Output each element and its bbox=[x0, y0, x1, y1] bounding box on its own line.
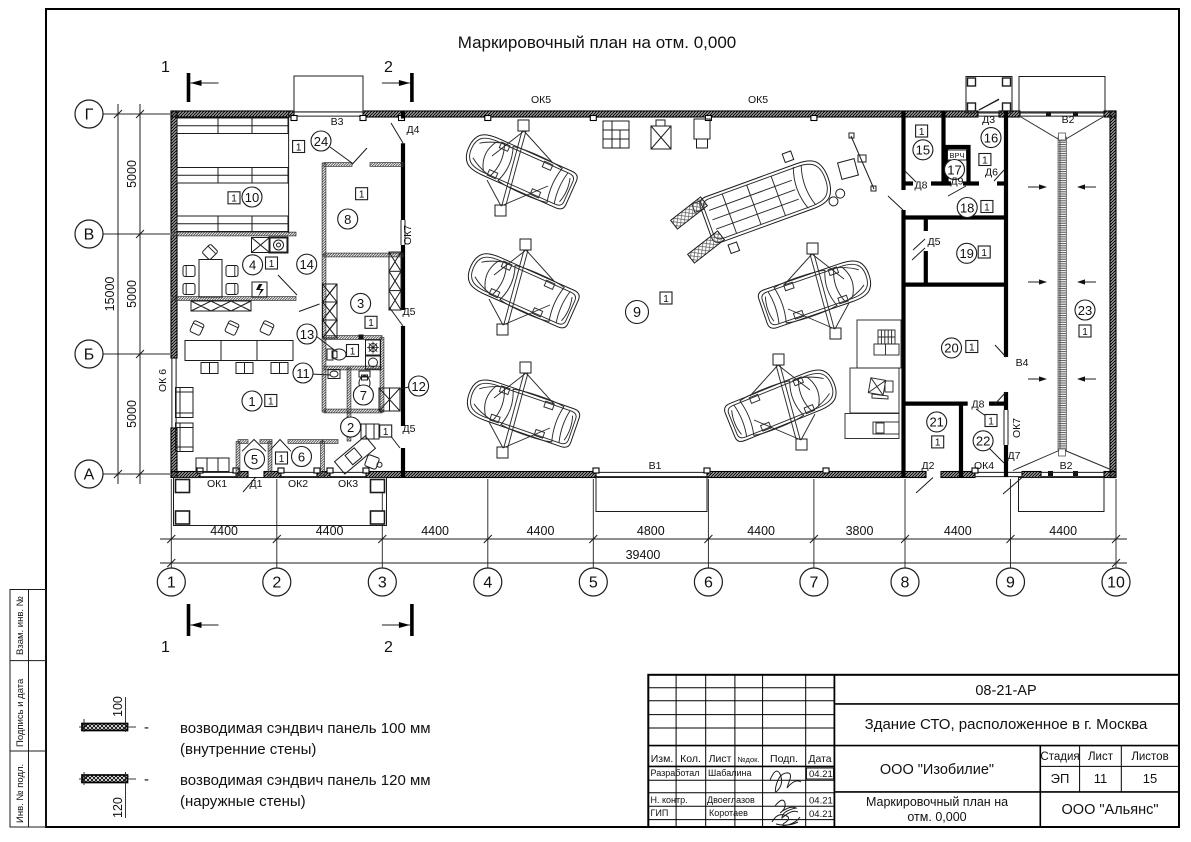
svg-text:Д9: Д9 bbox=[951, 176, 964, 188]
svg-text:Д5: Д5 bbox=[403, 306, 416, 318]
svg-text:Н. контр.: Н. контр. bbox=[651, 795, 688, 805]
svg-text:1: 1 bbox=[161, 639, 170, 656]
svg-text:-: - bbox=[144, 771, 149, 788]
svg-text:04.21: 04.21 bbox=[809, 796, 833, 807]
svg-text:9: 9 bbox=[1006, 575, 1015, 592]
svg-text:-: - bbox=[144, 719, 149, 736]
svg-text:8: 8 bbox=[344, 212, 351, 227]
svg-text:04.21: 04.21 bbox=[809, 809, 833, 820]
svg-text:5: 5 bbox=[589, 575, 598, 592]
svg-text:ВРЧ: ВРЧ bbox=[949, 151, 964, 160]
svg-text:ОК4: ОК4 bbox=[974, 460, 994, 472]
svg-text:1: 1 bbox=[350, 346, 356, 357]
svg-text:4400: 4400 bbox=[747, 524, 775, 538]
svg-text:Маркировочный план на: Маркировочный план на bbox=[866, 795, 1008, 809]
svg-text:В4: В4 bbox=[1016, 357, 1029, 369]
svg-text:Подп.: Подп. bbox=[770, 753, 798, 765]
svg-text:4400: 4400 bbox=[1049, 524, 1077, 538]
svg-text:4: 4 bbox=[483, 575, 492, 592]
svg-text:1: 1 bbox=[984, 202, 990, 213]
svg-text:04.21: 04.21 bbox=[809, 769, 833, 780]
svg-text:Г: Г bbox=[85, 107, 94, 124]
svg-text:Коротаев: Коротаев bbox=[709, 808, 748, 818]
svg-text:1: 1 bbox=[663, 294, 669, 305]
svg-text:3: 3 bbox=[378, 575, 387, 592]
svg-text:отм. 0,000: отм. 0,000 bbox=[907, 810, 966, 824]
svg-text:1: 1 bbox=[969, 342, 975, 353]
svg-text:2: 2 bbox=[347, 420, 354, 435]
svg-text:возводимая сэндвич панель 100: возводимая сэндвич панель 100 мм bbox=[180, 720, 431, 737]
svg-text:1: 1 bbox=[1082, 327, 1088, 338]
svg-text:1: 1 bbox=[167, 575, 176, 592]
svg-text:Дата: Дата bbox=[808, 753, 831, 765]
svg-text:08-21-АР: 08-21-АР bbox=[975, 683, 1036, 699]
svg-text:Д2: Д2 bbox=[922, 460, 935, 472]
svg-text:10: 10 bbox=[1107, 575, 1125, 592]
svg-text:ОК5: ОК5 bbox=[748, 94, 768, 106]
svg-text:1: 1 bbox=[368, 318, 374, 329]
svg-text:1: 1 bbox=[248, 394, 255, 409]
svg-text:4400: 4400 bbox=[210, 524, 238, 538]
svg-text:10: 10 bbox=[245, 190, 259, 205]
svg-text:14: 14 bbox=[299, 257, 313, 272]
svg-text:В2: В2 bbox=[1062, 114, 1075, 126]
svg-text:4400: 4400 bbox=[944, 524, 972, 538]
svg-text:ОК1: ОК1 bbox=[207, 478, 227, 490]
svg-text:4800: 4800 bbox=[637, 524, 665, 538]
svg-text:В1: В1 bbox=[649, 460, 662, 472]
svg-text:20: 20 bbox=[944, 341, 958, 356]
svg-text:ОК2: ОК2 bbox=[288, 478, 308, 490]
svg-text:1: 1 bbox=[296, 142, 302, 153]
svg-text:Д5: Д5 bbox=[403, 423, 416, 435]
svg-text:5: 5 bbox=[251, 452, 258, 467]
svg-text:В: В bbox=[84, 227, 95, 244]
svg-text:2: 2 bbox=[384, 639, 393, 656]
svg-text:Кол.: Кол. bbox=[680, 753, 701, 765]
svg-text:2: 2 bbox=[272, 575, 281, 592]
svg-text:В2: В2 bbox=[1060, 460, 1073, 472]
svg-text:3800: 3800 bbox=[846, 524, 874, 538]
svg-text:Б: Б bbox=[84, 347, 95, 364]
svg-text:Подпись и дата: Подпись и дата bbox=[15, 678, 26, 747]
svg-text:Взам. инв. №: Взам. инв. № bbox=[15, 596, 26, 655]
svg-text:7: 7 bbox=[809, 575, 818, 592]
svg-text:ОК5: ОК5 bbox=[531, 94, 551, 106]
svg-text:1: 1 bbox=[231, 194, 237, 205]
svg-text:Д3: Д3 bbox=[982, 114, 995, 126]
svg-text:1: 1 bbox=[919, 127, 925, 138]
svg-text:Д4: Д4 bbox=[407, 124, 420, 136]
svg-text:24: 24 bbox=[314, 134, 328, 149]
svg-text:23: 23 bbox=[1078, 303, 1092, 318]
svg-text:6: 6 bbox=[298, 449, 305, 464]
svg-text:1: 1 bbox=[383, 427, 389, 438]
svg-text:ООО "Альянс": ООО "Альянс" bbox=[1062, 802, 1159, 818]
svg-text:11: 11 bbox=[296, 366, 310, 381]
svg-text:120: 120 bbox=[111, 797, 125, 818]
svg-text:100: 100 bbox=[111, 696, 125, 717]
svg-text:16: 16 bbox=[984, 130, 998, 145]
svg-text:18: 18 bbox=[960, 200, 974, 215]
svg-text:6: 6 bbox=[704, 575, 713, 592]
svg-text:1: 1 bbox=[161, 59, 170, 76]
svg-text:4400: 4400 bbox=[316, 524, 344, 538]
svg-text:22: 22 bbox=[976, 434, 990, 449]
svg-text:Д6: Д6 bbox=[985, 167, 998, 179]
svg-text:15: 15 bbox=[916, 143, 930, 158]
svg-text:Листов: Листов bbox=[1131, 751, 1168, 763]
svg-text:4400: 4400 bbox=[527, 524, 555, 538]
svg-text:1: 1 bbox=[279, 454, 285, 465]
svg-text:ГИП: ГИП bbox=[651, 808, 669, 818]
svg-text:№док.: №док. bbox=[738, 755, 760, 764]
svg-text:5000: 5000 bbox=[125, 280, 139, 308]
svg-text:4: 4 bbox=[249, 258, 256, 273]
svg-text:8: 8 bbox=[901, 575, 910, 592]
svg-text:ООО "Изобилие": ООО "Изобилие" bbox=[880, 762, 994, 778]
svg-text:15000: 15000 bbox=[103, 277, 117, 312]
svg-text:(наружные стены): (наружные стены) bbox=[180, 793, 306, 810]
svg-text:Лист: Лист bbox=[709, 753, 732, 765]
svg-text:2: 2 bbox=[384, 59, 393, 76]
svg-text:1: 1 bbox=[981, 248, 987, 259]
svg-text:13: 13 bbox=[300, 327, 314, 342]
svg-text:15: 15 bbox=[1143, 771, 1157, 786]
svg-text:1: 1 bbox=[988, 416, 994, 427]
svg-text:1: 1 bbox=[269, 259, 275, 270]
svg-text:Шабалина: Шабалина bbox=[708, 768, 751, 778]
svg-text:1: 1 bbox=[982, 155, 988, 166]
svg-text:А: А bbox=[84, 467, 95, 484]
svg-text:1: 1 bbox=[268, 396, 274, 407]
svg-text:9: 9 bbox=[633, 305, 641, 321]
svg-text:В3: В3 bbox=[331, 116, 344, 128]
svg-text:Двоеглазов: Двоеглазов bbox=[707, 795, 755, 805]
svg-text:4400: 4400 bbox=[421, 524, 449, 538]
svg-text:Д1: Д1 bbox=[250, 478, 263, 490]
svg-text:ОК3: ОК3 bbox=[338, 478, 358, 490]
svg-text:Стадия: Стадия bbox=[1040, 751, 1079, 763]
svg-text:Разработал: Разработал bbox=[651, 768, 700, 778]
svg-text:1: 1 bbox=[359, 190, 365, 201]
svg-text:39400: 39400 bbox=[626, 548, 661, 562]
svg-text:Д8: Д8 bbox=[972, 399, 985, 411]
svg-text:Д5: Д5 bbox=[928, 236, 941, 248]
svg-text:1: 1 bbox=[935, 438, 941, 449]
svg-text:3: 3 bbox=[357, 296, 364, 311]
svg-text:ОК7: ОК7 bbox=[1011, 418, 1023, 438]
svg-text:5000: 5000 bbox=[125, 400, 139, 428]
svg-text:Инв. № подл.: Инв. № подл. bbox=[15, 764, 26, 823]
svg-text:5000: 5000 bbox=[125, 160, 139, 188]
svg-text:11: 11 bbox=[1094, 771, 1108, 786]
svg-text:Д8: Д8 bbox=[915, 180, 928, 192]
svg-text:Здание СТО, расположенное в г.: Здание СТО, расположенное в г. Москва bbox=[865, 716, 1148, 733]
svg-text:(внутренние стены): (внутренние стены) bbox=[180, 741, 316, 758]
svg-text:19: 19 bbox=[959, 246, 973, 261]
svg-text:Маркировочный план на отм. 0,0: Маркировочный план на отм. 0,000 bbox=[458, 33, 737, 52]
svg-text:ЭП: ЭП bbox=[1051, 771, 1070, 786]
svg-text:7: 7 bbox=[360, 388, 367, 403]
svg-text:12: 12 bbox=[411, 379, 425, 394]
svg-text:ОК 6: ОК 6 bbox=[157, 369, 169, 392]
svg-text:Д7: Д7 bbox=[1008, 450, 1021, 462]
svg-text:Изм.: Изм. bbox=[651, 753, 674, 765]
svg-text:21: 21 bbox=[929, 415, 943, 430]
svg-text:возводимая сэндвич панель 120: возводимая сэндвич панель 120 мм bbox=[180, 772, 431, 789]
svg-text:Лист: Лист bbox=[1088, 751, 1114, 763]
svg-text:ОК7: ОК7 bbox=[402, 225, 414, 245]
